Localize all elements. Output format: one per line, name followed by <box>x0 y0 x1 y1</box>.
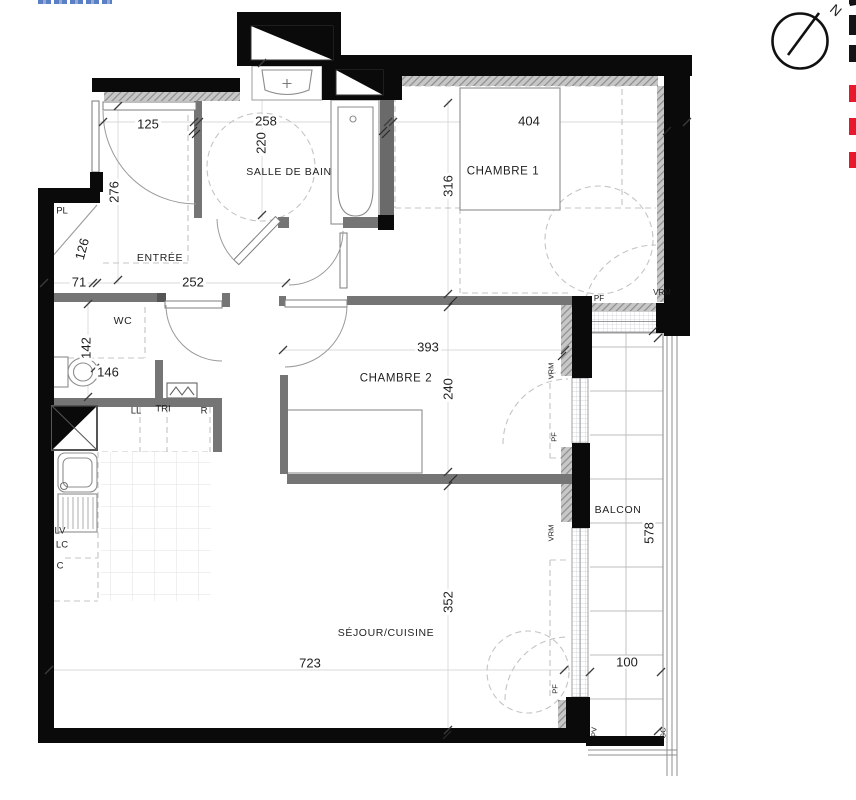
entry-door <box>103 102 196 204</box>
doors <box>103 102 347 367</box>
kitchen-tile-floor <box>101 452 211 601</box>
washbasin <box>252 66 322 100</box>
chambre1-door <box>289 231 347 288</box>
wc-door <box>165 301 222 361</box>
chambre2-door <box>285 300 347 367</box>
window-chambre1 <box>590 311 658 332</box>
window-sejour <box>572 528 588 697</box>
shaft-symbol-bath <box>336 70 383 95</box>
bed-chambre1 <box>460 88 560 210</box>
shaft-symbol-kitchen <box>52 406 97 450</box>
electrical-panel <box>167 383 197 398</box>
bathtub <box>331 100 379 224</box>
bed-chambre2 <box>287 410 422 473</box>
floor-plan-page: 1252584042203162761267125214214639324035… <box>0 0 856 800</box>
window-chambre2 <box>572 378 588 443</box>
clipped-link-fragment <box>38 0 112 4</box>
balcony-floor <box>590 333 663 746</box>
edge-mark-2 <box>849 45 856 62</box>
compass-icon <box>773 13 828 69</box>
edge-mark-5 <box>849 152 856 168</box>
edge-mark-4 <box>849 118 856 135</box>
shaft-symbol-top <box>251 26 333 60</box>
kitchen-sink <box>58 453 97 532</box>
edge-mark-3 <box>849 85 856 102</box>
edge-mark-1 <box>849 15 856 35</box>
edge-mark-0 <box>849 0 856 4</box>
bathroom-door <box>217 217 281 265</box>
floor-plan-drawing <box>0 0 856 800</box>
